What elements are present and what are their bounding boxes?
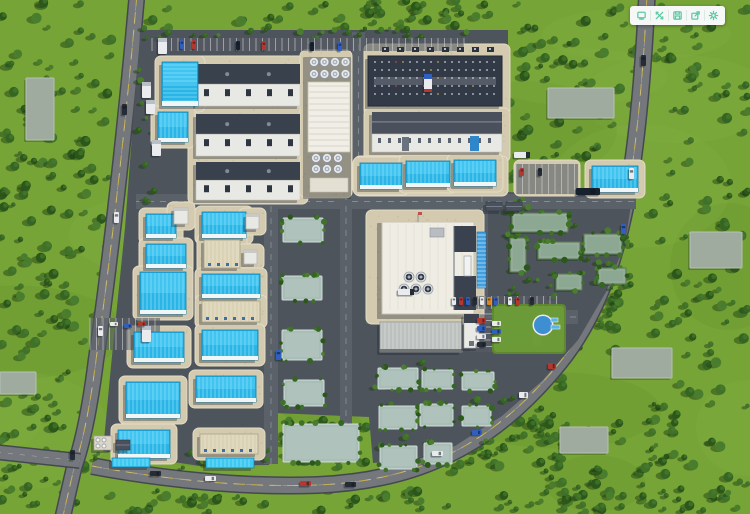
- settings-icon: [708, 10, 719, 21]
- toolbar-separator: [668, 10, 669, 21]
- toolbar-separator: [650, 10, 651, 21]
- save-button[interactable]: [670, 8, 685, 23]
- save-icon: [672, 10, 683, 21]
- toolbar-separator: [704, 10, 705, 21]
- scene-3d-view[interactable]: [0, 0, 750, 514]
- settings-button[interactable]: [706, 8, 721, 23]
- export-button[interactable]: [688, 8, 703, 23]
- app-window: [0, 0, 750, 514]
- screen-icon: [636, 10, 647, 21]
- expand-button[interactable]: [652, 8, 667, 23]
- toolbar: [630, 6, 725, 25]
- export-icon: [690, 10, 701, 21]
- screen-button[interactable]: [634, 8, 649, 23]
- expand-icon: [654, 10, 665, 21]
- toolbar-separator: [686, 10, 687, 21]
